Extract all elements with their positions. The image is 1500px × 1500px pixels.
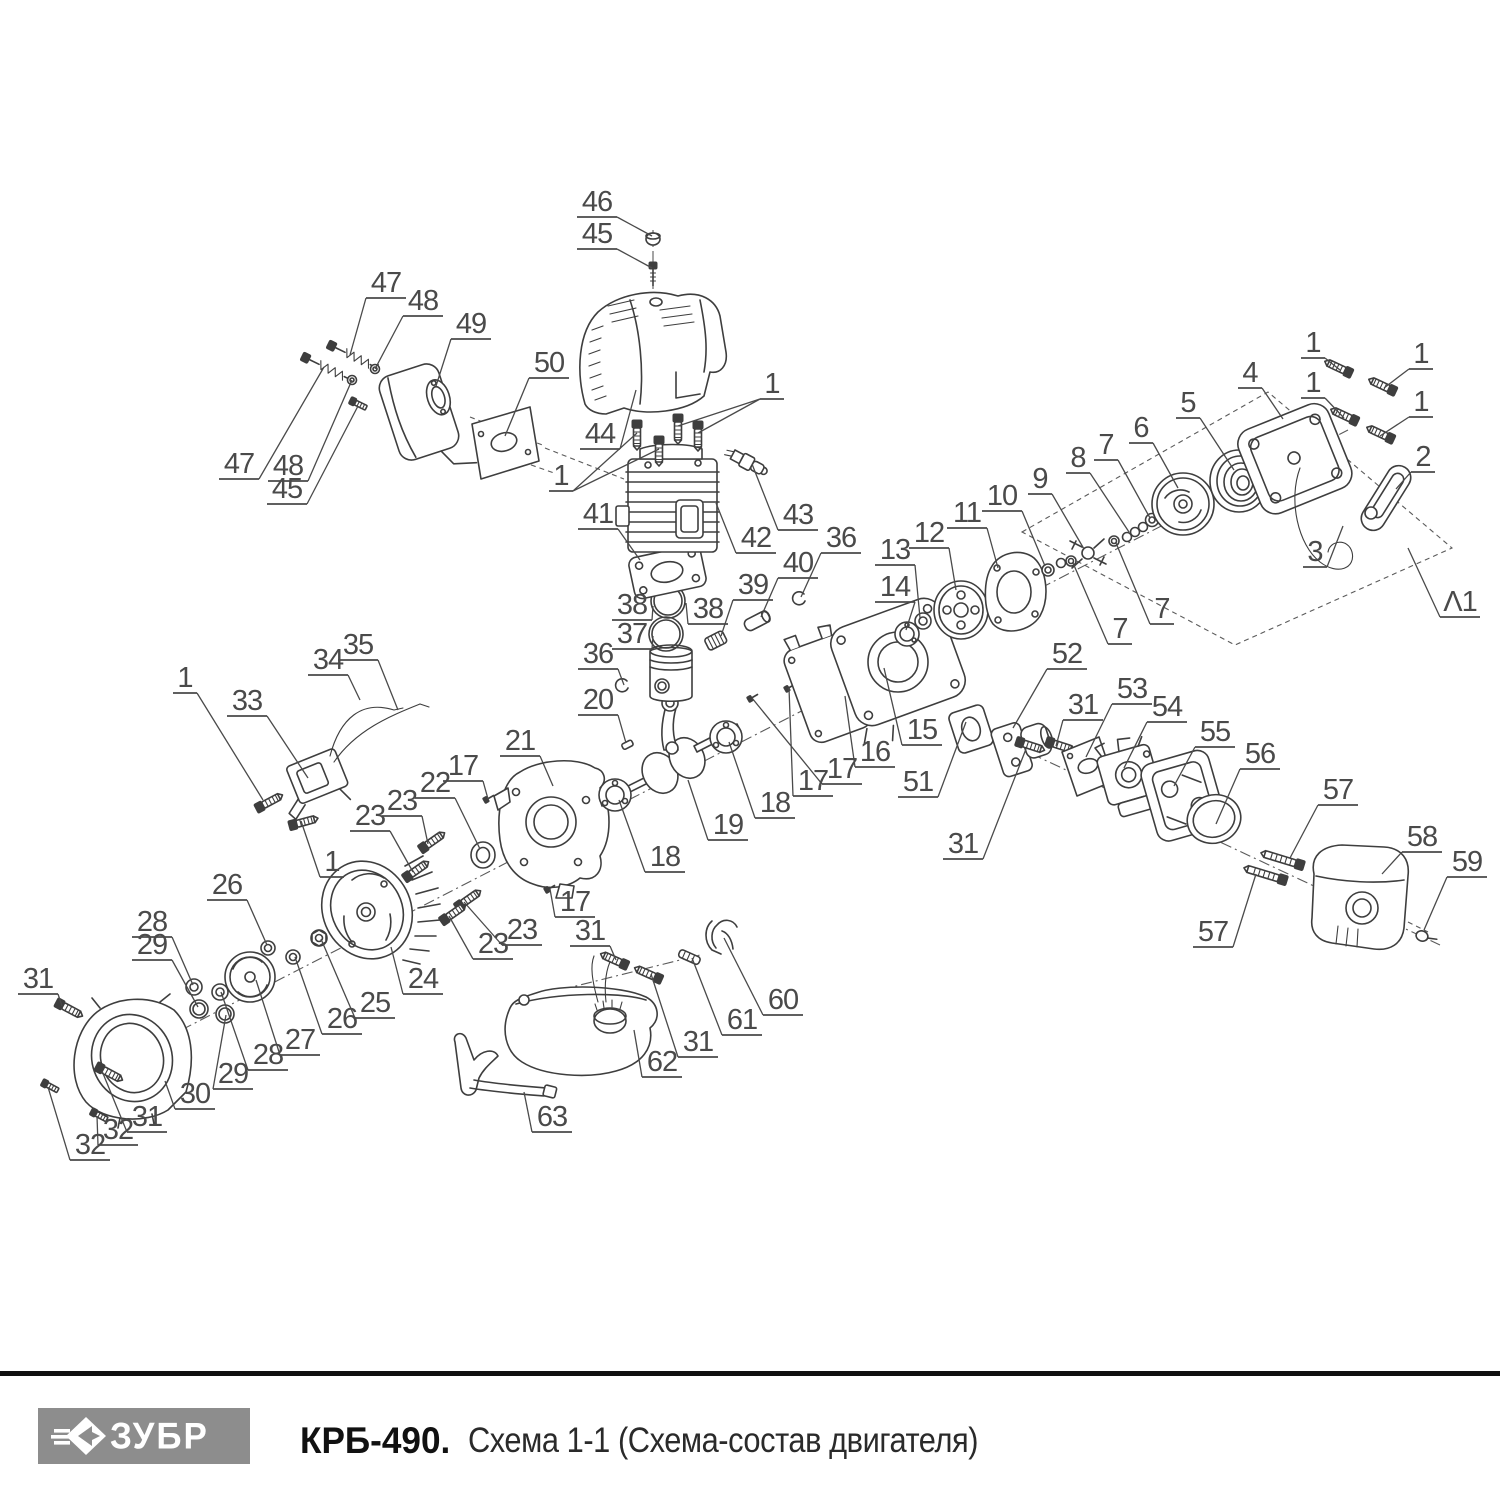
leader-line <box>247 900 267 945</box>
part-muffler-plate-50 <box>472 407 539 479</box>
part-label: 17 <box>798 765 828 797</box>
part-starter-handle-2 <box>1357 461 1416 535</box>
part-label: 58 <box>1407 821 1437 853</box>
washer-13 <box>915 613 931 629</box>
leader-line <box>301 821 320 877</box>
leader-line <box>1408 548 1440 617</box>
washer-7 <box>1066 556 1076 566</box>
part-label: 50 <box>534 347 564 379</box>
bolt-31 <box>54 998 85 1021</box>
part-label: 12 <box>914 517 944 549</box>
needle-bearing-39 <box>704 630 728 651</box>
part-label: 43 <box>783 499 813 531</box>
part-label: Λ1 <box>1443 586 1477 618</box>
part-label: 9 <box>1032 463 1047 495</box>
parts-diagram-page: 4645441141424347484950474845364039383837… <box>0 0 1500 1500</box>
leader-line <box>1262 388 1283 419</box>
part-label: 28 <box>253 1039 283 1071</box>
part-fork-60 <box>706 920 737 954</box>
part-label: 51 <box>903 766 933 798</box>
part-label: 31 <box>948 828 978 860</box>
part-label: 1 <box>177 662 192 694</box>
leader-line <box>436 339 451 386</box>
woodruff-key-20 <box>621 740 634 750</box>
part-labels-layer: 4645441141424347484950474845364039383837… <box>18 186 1487 1161</box>
footer-divider <box>0 1371 1500 1376</box>
leader-line <box>348 675 360 700</box>
part-label: 38 <box>693 593 723 625</box>
part-label: 1 <box>1305 367 1320 399</box>
cap-nut-46 <box>646 233 660 245</box>
oil-seal-22 <box>471 842 495 868</box>
leader-line <box>692 958 722 1035</box>
part-label: 8 <box>1070 442 1085 474</box>
part-label: 15 <box>907 714 937 746</box>
bolt-1 <box>673 414 683 444</box>
leader-line <box>716 503 736 553</box>
screw-17 <box>747 692 760 703</box>
part-top-cover-44 <box>580 293 726 414</box>
model-code: КРБ-490. <box>300 1420 450 1462</box>
leader-line <box>618 669 624 685</box>
leader-line <box>449 916 473 959</box>
part-label: 22 <box>420 767 450 799</box>
part-label: 52 <box>1052 638 1082 670</box>
leader-line <box>1327 526 1343 567</box>
part-label: 26 <box>327 1003 357 1035</box>
part-label: 21 <box>505 725 535 757</box>
part-label: 49 <box>456 308 486 340</box>
bolt-1 <box>693 421 703 451</box>
bolt-1 <box>632 420 642 450</box>
part-label: 1 <box>324 846 339 878</box>
leader-line <box>422 816 428 844</box>
leader-line <box>390 831 413 872</box>
part-piston-37 <box>650 645 692 701</box>
screw-45 <box>649 262 657 286</box>
bolt-57 <box>1243 863 1289 886</box>
screw-59 <box>1415 929 1438 946</box>
part-label: 23 <box>355 800 385 832</box>
leader-line <box>391 947 403 994</box>
spacers-8 <box>1123 523 1148 542</box>
part-label: 4 <box>1242 357 1258 389</box>
part-label: 55 <box>1200 716 1230 748</box>
part-label: 20 <box>583 684 613 716</box>
leader-line <box>1233 874 1256 947</box>
leader-line <box>789 688 793 796</box>
part-label: 14 <box>880 571 911 603</box>
part-label: 31 <box>23 963 53 995</box>
part-label: 61 <box>727 1004 757 1036</box>
bearing-18 <box>599 779 631 811</box>
exploded-diagram: 4645441141424347484950474845364039383837… <box>0 0 1500 1372</box>
piston-pin-40 <box>743 610 772 633</box>
part-label: 47 <box>371 267 401 299</box>
part-label: 6 <box>1133 412 1148 444</box>
leader-line <box>350 298 366 355</box>
part-label: 10 <box>987 480 1017 512</box>
part-label: 1 <box>553 460 568 492</box>
part-label: 27 <box>285 1024 315 1056</box>
part-label: 39 <box>738 569 768 601</box>
part-label: 41 <box>583 498 613 530</box>
part-label: 47 <box>224 448 254 480</box>
part-label: 24 <box>408 963 439 995</box>
leader-line <box>619 800 645 872</box>
part-label: 7 <box>1112 613 1127 645</box>
bolt-47 <box>300 352 352 384</box>
zubr-arrow-icon <box>48 1413 110 1459</box>
part-label: 23 <box>387 785 417 817</box>
part-label: 31 <box>683 1026 713 1058</box>
part-label: 31 <box>575 915 605 947</box>
wire-34 <box>330 707 403 756</box>
part-label: 18 <box>650 841 680 873</box>
bolt-23 <box>401 858 431 883</box>
schema-subtitle: Схема 1-1 (Схема-состав двигателя) <box>468 1421 978 1461</box>
part-label: 17 <box>560 886 590 918</box>
leader-line <box>1116 543 1150 624</box>
bolt-1 <box>1367 375 1398 397</box>
part-label: 2 <box>1415 441 1430 473</box>
leader-line <box>618 715 626 743</box>
spark-plug-43 <box>723 445 770 479</box>
leader-line <box>688 780 708 840</box>
part-label: 45 <box>582 218 612 250</box>
part-label: 5 <box>1180 387 1195 419</box>
part-label: 31 <box>1068 689 1098 721</box>
leader-line <box>686 603 688 624</box>
part-label: 36 <box>583 638 613 670</box>
leader-line <box>1380 417 1409 436</box>
part-label: 11 <box>953 497 981 529</box>
part-label: 1 <box>764 368 779 400</box>
part-label: 32 <box>103 1114 133 1146</box>
leader-line <box>987 528 998 568</box>
part-label: 3 <box>1307 536 1322 568</box>
part-label: 17 <box>448 750 478 782</box>
bolt-1 <box>1365 423 1396 445</box>
leader-line <box>375 316 403 369</box>
bolt-31 <box>633 963 664 984</box>
part-label: 16 <box>860 736 890 768</box>
part-label: 57 <box>1198 916 1228 948</box>
leader-line <box>938 722 966 797</box>
part-rotor-12 <box>934 581 988 639</box>
part-label: 35 <box>343 629 373 661</box>
part-fuel-tank-62 <box>505 956 657 1075</box>
part-label: 57 <box>1323 774 1353 806</box>
part-label: 48 <box>408 285 438 317</box>
part-gasket-51 <box>947 703 994 754</box>
part-label: 29 <box>137 929 167 961</box>
part-label: 23 <box>507 914 537 946</box>
nut-25 <box>311 930 327 946</box>
part-label: 40 <box>783 547 813 579</box>
part-gasket-11 <box>985 552 1046 631</box>
leader-line <box>1384 369 1409 388</box>
part-label: 7 <box>1154 593 1169 625</box>
part-label: 59 <box>1452 846 1482 878</box>
leader-line <box>307 406 358 504</box>
part-label: 54 <box>1152 691 1183 723</box>
bolt-23 <box>417 829 447 854</box>
leader-line <box>617 249 652 268</box>
part-cylinder-42 <box>616 445 719 553</box>
part-label: 53 <box>1117 673 1147 705</box>
part-label: 38 <box>617 589 647 621</box>
part-label: 56 <box>1245 738 1275 770</box>
part-label: 13 <box>880 534 910 566</box>
bolt-1 <box>254 791 285 814</box>
leader-line <box>1424 877 1447 930</box>
part-label: 42 <box>741 522 771 554</box>
part-label: 37 <box>617 618 647 650</box>
part-label: 18 <box>760 787 790 819</box>
part-label: 17 <box>827 753 857 785</box>
part-label: 30 <box>180 1078 210 1110</box>
wire-35 <box>334 704 429 762</box>
part-label: 1 <box>1413 338 1428 370</box>
leader-line <box>48 1087 70 1160</box>
part-label: 31 <box>132 1101 162 1133</box>
part-muffler-49 <box>376 358 477 484</box>
part-label: 44 <box>585 418 616 450</box>
part-label: 32 <box>75 1129 105 1161</box>
part-label: 1 <box>1413 386 1428 418</box>
part-label: 63 <box>537 1101 567 1133</box>
leader-line <box>455 798 480 849</box>
part-label: 33 <box>232 685 262 717</box>
part-label: 1 <box>1305 327 1320 359</box>
part-starter-pulley-6 <box>1152 473 1214 535</box>
nut-10 <box>1042 559 1066 577</box>
part-label: 26 <box>212 869 242 901</box>
leader-line <box>617 217 652 236</box>
leader-line <box>550 889 555 917</box>
part-label: 36 <box>826 522 856 554</box>
brand-logo: ЗУБР <box>38 1408 250 1464</box>
leader-line <box>524 1092 532 1132</box>
part-label: 45 <box>272 473 302 505</box>
washers-48 <box>348 365 380 385</box>
leader-line <box>295 957 322 1034</box>
part-label: 7 <box>1098 429 1113 461</box>
part-label: 19 <box>713 809 743 841</box>
bolt-31 <box>599 949 630 970</box>
pin-61 <box>678 949 701 965</box>
bearing-18 <box>710 721 742 753</box>
leader-line <box>1052 494 1084 549</box>
part-label: 23 <box>478 928 508 960</box>
brand-name: ЗУБР <box>110 1418 209 1455</box>
bolt-57 <box>1260 848 1306 871</box>
part-label: 46 <box>582 186 612 218</box>
part-label: 25 <box>360 987 390 1019</box>
screw-17 <box>483 793 496 804</box>
part-label: 60 <box>768 984 798 1016</box>
page-title: КРБ-490. Схема 1-1 (Схема-состав двигате… <box>300 1416 1048 1466</box>
screw-45 <box>348 396 368 411</box>
part-label: 29 <box>218 1058 248 1090</box>
leader-line <box>1290 805 1318 858</box>
leader-line <box>378 660 398 710</box>
leader-line <box>1013 669 1047 728</box>
leader-line <box>729 742 755 818</box>
part-label: 62 <box>647 1046 677 1078</box>
part-clutch-27 <box>225 952 275 1002</box>
